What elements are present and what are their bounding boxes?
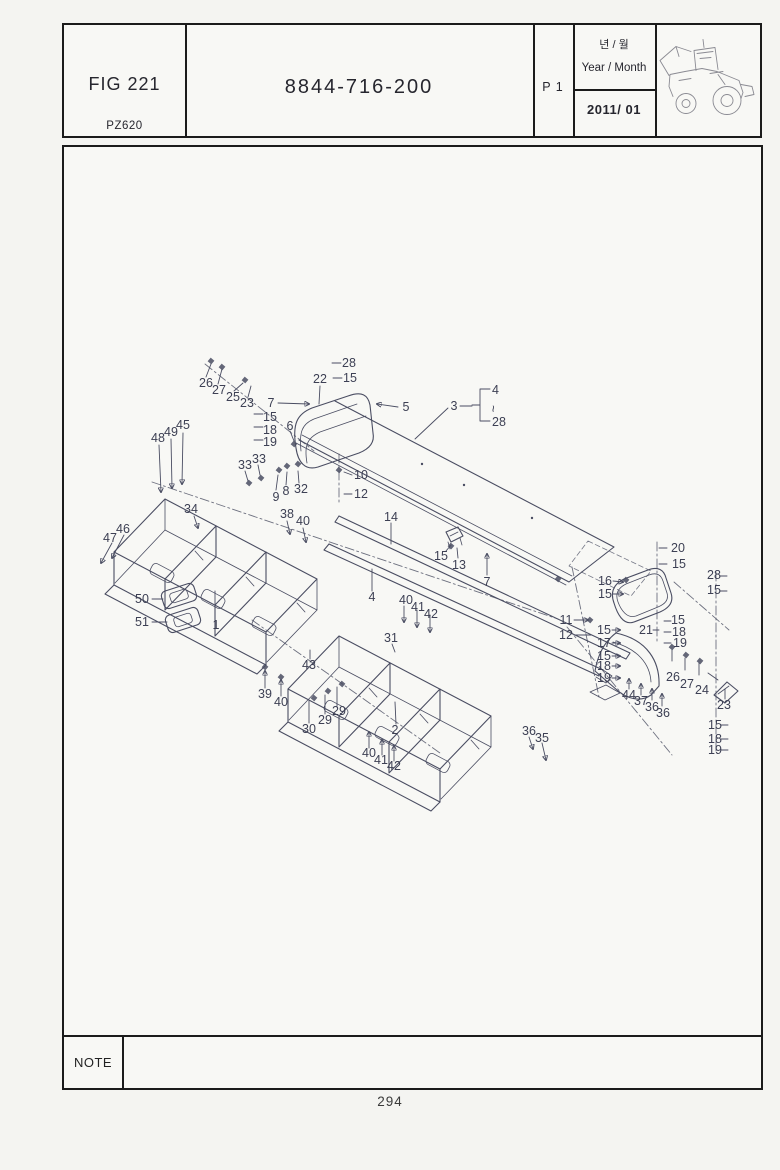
callout-12: 12 <box>559 628 573 642</box>
callout-19: 19 <box>263 435 277 449</box>
year-month-korean-label: 년 / 월 <box>573 36 655 52</box>
callout-35: 35 <box>535 731 549 745</box>
fastener-glyph <box>336 467 343 474</box>
panel-body <box>299 401 614 582</box>
fastener-glyph <box>683 652 690 659</box>
tray-1 <box>105 499 317 674</box>
callout-30: 30 <box>302 722 316 736</box>
right-pad <box>612 568 671 622</box>
callout-27: 27 <box>212 383 226 397</box>
callout-32: 32 <box>294 482 308 496</box>
callout-20: 20 <box>671 541 685 555</box>
callout-33: 33 <box>238 458 252 472</box>
leader-line <box>344 472 352 475</box>
callout-40: 40 <box>296 514 310 528</box>
callout-17: 17 <box>597 636 611 650</box>
fastener-glyph <box>276 467 283 474</box>
callout-19: 19 <box>708 743 722 757</box>
callout-29: 29 <box>318 713 332 727</box>
fastener-glyph <box>697 658 704 665</box>
catalog-page: { "header": { "fig_label": "FIG 221", "m… <box>0 0 780 1170</box>
callout-27: 27 <box>680 677 694 691</box>
drawing-frame: 2627252371518196222815534~28484945333398… <box>62 145 763 1090</box>
leader-line <box>542 743 546 760</box>
fastener-glyph <box>278 674 285 681</box>
callout-15: 15 <box>434 549 448 563</box>
note-box: NOTE <box>64 1035 761 1088</box>
callout-labels: 2627252371518196222815534~28484945333398… <box>103 356 731 773</box>
leader-line <box>276 475 278 490</box>
leader-line <box>101 543 112 563</box>
fastener-glyph <box>242 377 249 384</box>
callout-25: 25 <box>226 390 240 404</box>
page-number: 294 <box>0 1094 780 1109</box>
leader-line <box>457 548 458 558</box>
year-cell-divider <box>575 89 655 91</box>
callout-14: 14 <box>384 510 398 524</box>
callout-36: 36 <box>522 724 536 738</box>
callout-26: 26 <box>199 376 213 390</box>
flat-bracket <box>590 685 620 700</box>
parts-diagram: 2627252371518196222815534~28484945333398… <box>64 147 761 1035</box>
leader-line <box>258 465 260 475</box>
fastener-glyph <box>555 576 562 583</box>
callout-15: 15 <box>707 583 721 597</box>
leader-line <box>529 737 533 749</box>
leader-line <box>278 403 309 404</box>
fastener-glyph <box>246 480 253 487</box>
leader-line <box>218 369 222 384</box>
callout-15: 15 <box>672 557 686 571</box>
callout-15: 15 <box>598 587 612 601</box>
part-number: 8844-716-200 <box>185 76 533 99</box>
callout-15: 15 <box>263 410 277 424</box>
leader-line <box>377 404 398 407</box>
callout-39: 39 <box>258 687 272 701</box>
callout-26: 26 <box>666 670 680 684</box>
fastener-glyph <box>284 463 291 470</box>
callout-41: 41 <box>374 753 388 767</box>
callout-42: 42 <box>424 607 438 621</box>
header-box: FIG 221 PZ620 8844-716-200 P 1 년 / 월 Yea… <box>62 23 762 138</box>
callout-~: ~ <box>486 405 500 412</box>
leader-line <box>613 581 623 582</box>
callout-19: 19 <box>597 671 611 685</box>
callout-23: 23 <box>240 396 254 410</box>
callout-3: 3 <box>451 399 458 413</box>
callout-47: 47 <box>103 531 117 545</box>
callout-21: 21 <box>639 623 653 637</box>
callout-24: 24 <box>695 683 709 697</box>
fastener-glyph <box>262 664 269 671</box>
leader-line <box>245 471 248 481</box>
callout-46: 46 <box>116 522 130 536</box>
callout-40: 40 <box>274 695 288 709</box>
fastener-glyph <box>219 364 226 371</box>
callout-48: 48 <box>151 431 165 445</box>
callout-10: 10 <box>354 468 368 482</box>
year-month-english-label: Year / Month <box>573 62 655 74</box>
callout-8: 8 <box>283 484 290 498</box>
callout-23: 23 <box>717 698 731 712</box>
callout-7: 7 <box>268 396 275 410</box>
callout-50: 50 <box>135 592 149 606</box>
callout-12: 12 <box>354 487 368 501</box>
fastener-glyph <box>325 688 332 695</box>
callout-28: 28 <box>342 356 356 370</box>
callout-31: 31 <box>384 631 398 645</box>
callout-29: 29 <box>332 704 346 718</box>
page-code: P 1 <box>533 80 573 94</box>
callout-42: 42 <box>387 759 401 773</box>
fastener-glyph <box>291 441 298 448</box>
callout-2: 2 <box>392 723 399 737</box>
callout-36: 36 <box>656 706 670 720</box>
leader-line <box>182 433 183 484</box>
fastener-glyph <box>587 617 594 624</box>
leader-line <box>415 408 448 439</box>
callout-5: 5 <box>403 400 410 414</box>
note-label: NOTE <box>64 1037 124 1088</box>
callout-4: 4 <box>492 383 499 397</box>
leader-line <box>303 528 306 542</box>
callout-34: 34 <box>184 502 198 516</box>
fastener-glyph <box>208 358 215 365</box>
model-code: PZ620 <box>64 120 185 132</box>
callout-6: 6 <box>287 419 294 433</box>
callout-28: 28 <box>707 568 721 582</box>
callout-19: 19 <box>673 636 687 650</box>
leader-line <box>194 516 198 528</box>
callout-16: 16 <box>598 574 612 588</box>
callout-43: 43 <box>302 658 316 672</box>
callout-38: 38 <box>280 507 294 521</box>
figure-number: FIG 221 <box>64 74 185 95</box>
leader-line <box>392 644 395 652</box>
callout-45: 45 <box>176 418 190 432</box>
leader-line <box>395 702 396 724</box>
callout-11: 11 <box>560 613 573 627</box>
leader-line <box>319 386 320 404</box>
callout-15: 15 <box>597 623 611 637</box>
year-month-value: 2011/ 01 <box>573 102 655 117</box>
callout-15: 15 <box>343 371 357 385</box>
callout-28: 28 <box>492 415 506 429</box>
tractor-thumbnail-icon <box>655 25 760 136</box>
callout-4: 4 <box>369 590 376 604</box>
callout-51: 51 <box>135 615 149 629</box>
callout-41: 41 <box>411 600 425 614</box>
step-panel-assembly <box>295 394 614 585</box>
callout-33: 33 <box>252 452 266 466</box>
callout-13: 13 <box>452 558 466 572</box>
leader-line <box>171 439 172 488</box>
callout-22: 22 <box>313 372 327 386</box>
callout-15: 15 <box>708 718 722 732</box>
leader-line <box>708 673 718 680</box>
fastener-glyph <box>258 475 265 482</box>
callout-9: 9 <box>273 490 280 504</box>
callout-1: 1 <box>213 618 220 632</box>
callout-7: 7 <box>484 575 491 589</box>
